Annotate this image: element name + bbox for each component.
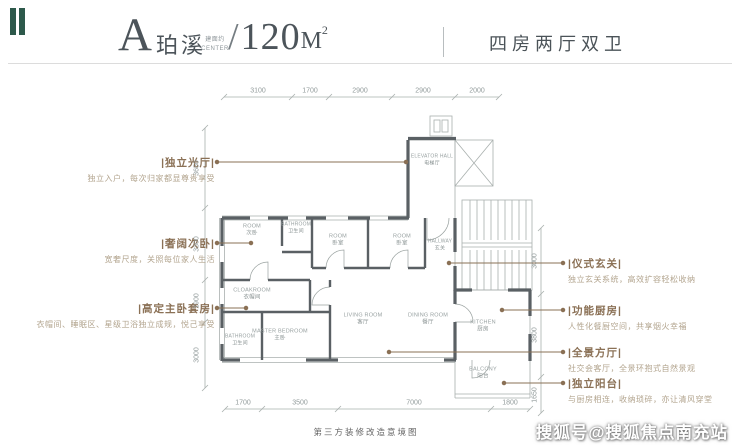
room-label: CLOAKROOM 衣帽间 [233,288,271,303]
room-name-zh: 卧室 [329,241,347,248]
feature-title: |仪式玄关| [568,256,696,271]
room-name-zh: 衣帽间 [233,295,271,302]
dimension-label: 3500 [292,400,308,407]
plan-caption: 第三方装修改造意境图 [300,426,432,438]
dimension-label: 1800 [502,400,518,407]
dimension-label: 3800 [532,327,539,343]
floorplan-page: A 珀溪 建面约 CENTER / 120 M 2 四房两厅双卫 [0,0,740,445]
dimension-label: 1650 [532,387,539,403]
feature-item: |全景方厅| 社交会客厅，全景环抱式自然景观 [568,345,696,374]
room-name-en: ELEVATOR HALL [411,153,453,159]
dimension-label: 3100 [250,88,266,95]
room-label: BALCONY 阳台 [469,367,497,382]
room-name-zh: 卫生间 [225,340,255,347]
feature-title: |独立阳台| [568,376,713,391]
room-label: LIVING ROOM 客厅 [344,313,383,328]
dimension-label: 2900 [415,88,431,95]
room-name-zh: 餐厅 [408,320,448,327]
room-label: ROOM 次卧 [243,224,261,239]
room-name-zh: 电梯厅 [411,160,453,167]
thin-wall-lines [220,116,533,398]
room-name-en: ROOM [393,234,411,240]
room-name-en: KITCHEN [470,320,496,326]
room-label: KITCHEN 厨房 [470,320,496,335]
dimension-label: 1700 [302,88,318,95]
room-name-en: BATHROOM [281,221,311,227]
dimension-label: 3300 [194,236,201,252]
room-name-zh: 阳台 [469,374,497,381]
feature-title: |全景方厅| [568,345,696,360]
dimension-label: 1700 [235,400,251,407]
dimension-label: 2900 [352,88,368,95]
room-name-zh: 玄关 [428,245,452,252]
room-name-en: MASTER BEDROOM [252,329,308,335]
room-name-zh: 主卧 [252,336,308,343]
feature-item: |独立阳台| 与厨房相连，收纳琐碎，亦让清风穿堂 [568,376,713,405]
dimension-label: 1900 [194,293,201,309]
room-label: BATHROOM 卫生间 [281,221,311,235]
room-label: BATHROOM 卫生间 [225,333,255,347]
room-name-en: ROOM [329,234,347,240]
room-name-zh: 卫生间 [281,228,311,235]
room-name-en: DINING ROOM [408,313,448,319]
room-label: ROOM 卧室 [393,234,411,249]
room-name-en: HALLWAY [428,238,452,244]
dimension-label: 3000 [194,347,201,363]
room-name-en: ROOM [243,224,261,230]
feature-title: |功能厨房| [568,303,687,318]
feature-desc: 社交会客厅，全景环抱式自然景观 [568,363,696,374]
room-name-zh: 次卧 [243,231,261,238]
feature-item: |功能厨房| 人性化餐厨空间，共享烟火幸福 [568,303,687,332]
feature-desc: 独立玄关系统，高效扩容轻松收纳 [568,274,696,285]
dimension-label: 2000 [469,88,485,95]
feature-item: |高定主卧套房| 衣帽间、睡眠区、星级卫浴独立成规，悦己享受 [37,301,216,330]
room-label: HALLWAY 玄关 [428,238,452,252]
dimension-label: 7000 [406,400,422,407]
room-label: MASTER BEDROOM 主卧 [252,329,308,344]
room-name-zh: 客厅 [344,320,383,327]
room-name-zh: 厨房 [470,327,496,334]
room-name-en: CLOAKROOM [233,288,271,294]
room-label: ELEVATOR HALL 电梯厅 [411,153,453,167]
room-label: ROOM 卧室 [329,234,347,249]
feature-desc: 宽奢尺度，关照每位家人生活 [105,254,216,265]
feature-desc: 衣帽间、睡眠区、星级卫浴独立成规，悦己享受 [37,319,216,330]
room-name-en: LIVING ROOM [344,313,383,319]
room-name-en: BATHROOM [225,333,255,339]
feature-desc: 人性化餐厨空间，共享烟火幸福 [568,321,687,332]
feature-title: |高定主卧套房| [37,301,216,316]
feature-item: |仪式玄关| 独立玄关系统，高效扩容轻松收纳 [568,256,696,285]
watermark: 搜狐号@搜狐焦点南充站 [536,419,728,443]
dimension-label: 3000 [532,253,539,269]
feature-desc: 与厨房相连，收纳琐碎，亦让清风穿堂 [568,394,713,405]
room-name-zh: 卧室 [393,241,411,248]
room-label: DINING ROOM 餐厅 [408,313,448,328]
dimension-label: 3650 [194,160,201,176]
room-name-en: BALCONY [469,367,497,373]
